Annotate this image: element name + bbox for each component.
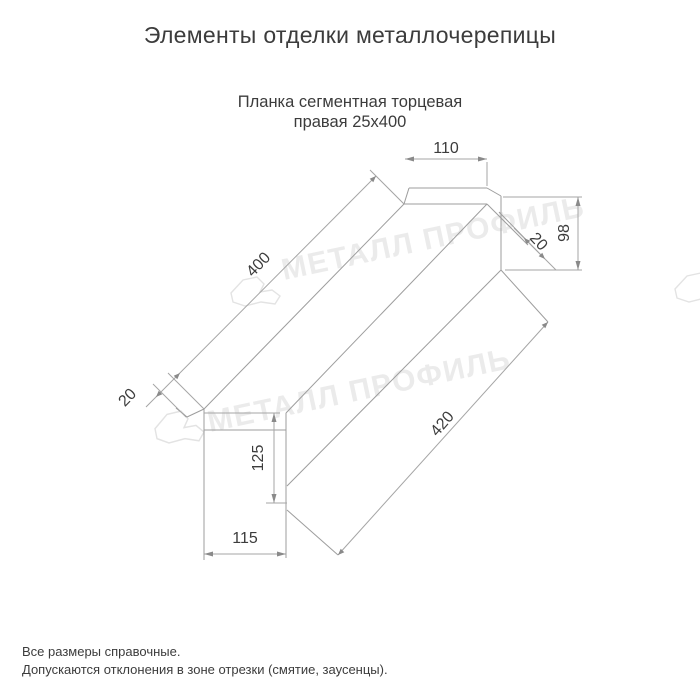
catalog-page: Элементы отделки металлочерепицы Планка … [0, 0, 700, 700]
footnote-line1: Все размеры справочные. [22, 643, 388, 661]
metall-profil-logo-icon [231, 277, 280, 306]
dim-label-420: 420 [427, 408, 457, 439]
metall-profil-logo-icon [675, 273, 700, 302]
watermark-text-bottom: МЕТАЛЛ ПРОФИЛЬ [205, 342, 514, 439]
dim-label-98: 98 [556, 224, 573, 242]
watermark-layer: МЕТАЛЛ ПРОФИЛЬ МЕТАЛЛ ПРОФИЛЬ [155, 190, 700, 443]
dim-label-115: 115 [232, 530, 258, 547]
technical-drawing: МЕТАЛЛ ПРОФИЛЬ МЕТАЛЛ ПРОФИЛЬ [0, 0, 700, 700]
dim-label-400: 400 [243, 249, 274, 280]
footnote-line2: Допускаются отклонения в зоне отрезки (с… [22, 661, 388, 679]
dim-label-20-near: 20 [115, 385, 140, 410]
metall-profil-logo-icon [155, 411, 204, 443]
dim-label-125: 125 [250, 445, 267, 472]
footnotes: Все размеры справочные. Допускаются откл… [22, 643, 388, 679]
dim-label-110: 110 [433, 140, 459, 157]
